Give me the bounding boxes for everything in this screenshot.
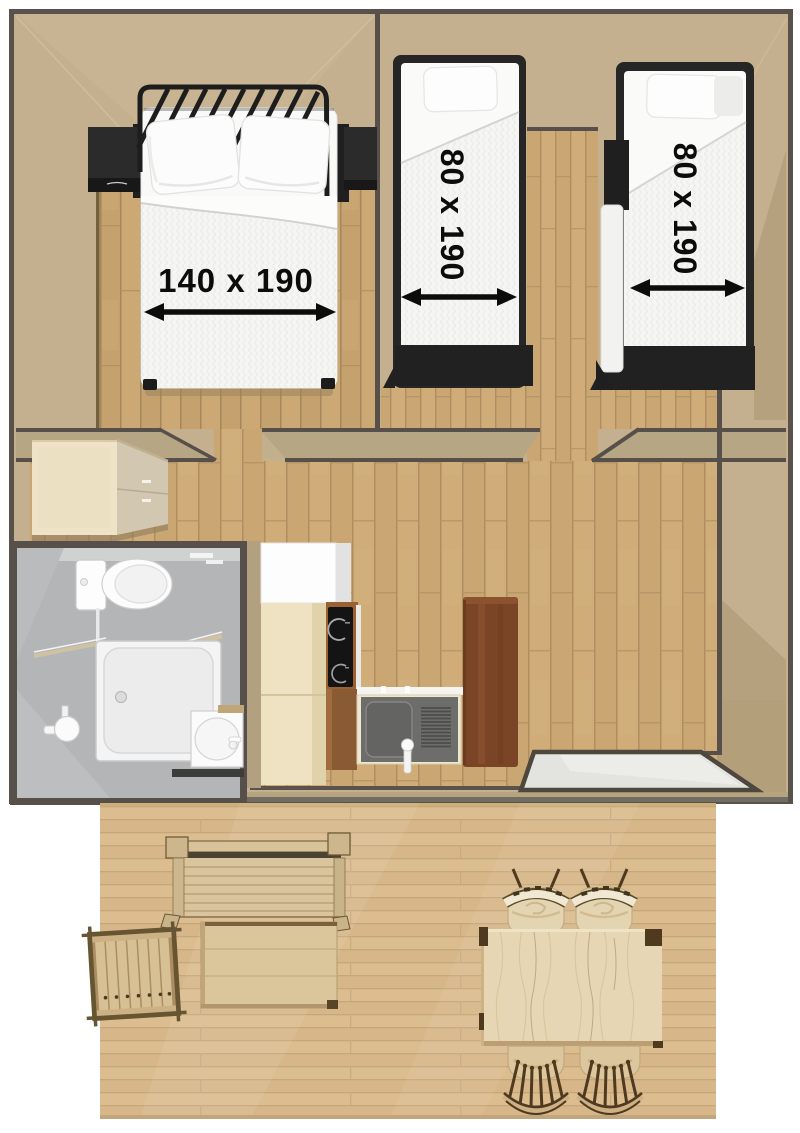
svg-text:140 x 190: 140 x 190 bbox=[158, 262, 314, 299]
svg-text:80 x 190: 80 x 190 bbox=[667, 143, 703, 276]
svg-text:80 x 190: 80 x 190 bbox=[434, 149, 470, 282]
